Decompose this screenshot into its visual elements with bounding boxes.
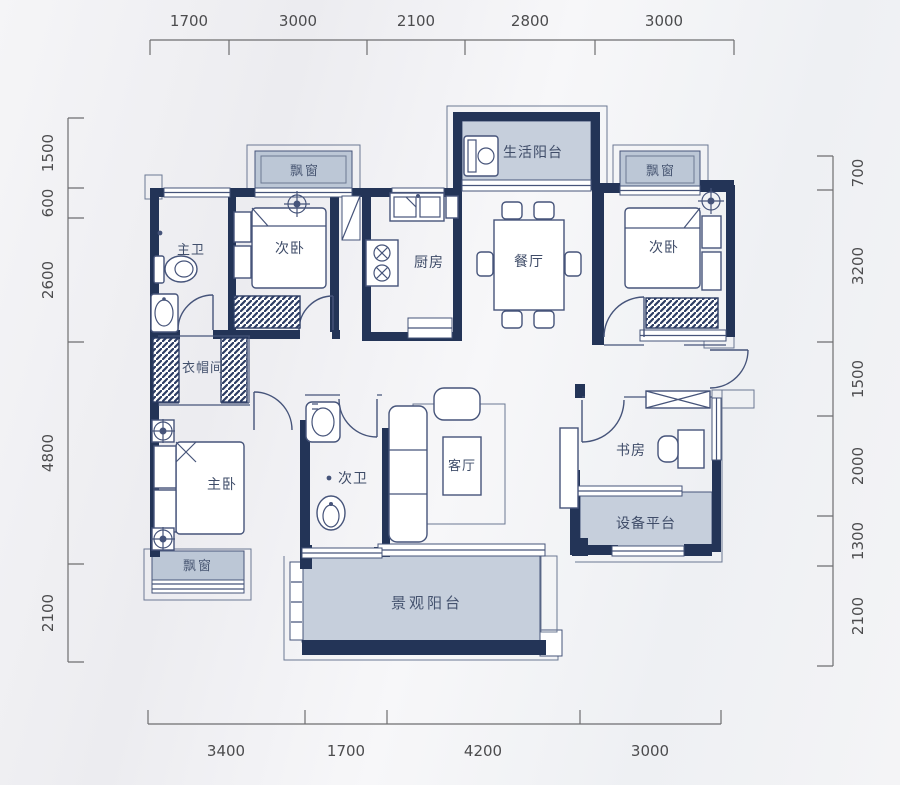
room-label-master-bath: 主卫	[177, 243, 205, 258]
window	[620, 186, 700, 195]
dim-label: 2800	[511, 12, 549, 30]
room-label-bay-top-right: 飘窗	[646, 163, 676, 179]
dim-label: 2600	[39, 261, 57, 299]
toilet-icon	[154, 256, 197, 283]
chair	[477, 252, 493, 276]
chair	[565, 252, 581, 276]
nightstand	[702, 252, 721, 290]
room-living	[389, 388, 578, 542]
window	[712, 398, 721, 460]
window	[612, 546, 684, 556]
window	[302, 548, 382, 558]
closet-icon	[153, 338, 179, 402]
closet-x-box	[646, 391, 710, 408]
room-label-kitchen: 厨房	[414, 255, 444, 271]
room-label-second-bath: 次卫	[338, 471, 368, 487]
chair	[534, 202, 554, 219]
floor-plan-svg: 1700 3000 2100 2800 3000 3400 1700 4200 …	[0, 0, 900, 785]
chair	[658, 436, 678, 462]
desk-icon	[678, 430, 704, 468]
dim-label: 700	[849, 159, 867, 188]
cabinet	[446, 196, 458, 218]
dimension-right: 700 3200 1500 2000 1300 2100	[817, 156, 867, 666]
dim-label: 3400	[207, 742, 245, 760]
dim-label: 1700	[327, 742, 365, 760]
dim-label: 1300	[849, 522, 867, 560]
closet-icon	[221, 338, 247, 402]
door-arc	[582, 400, 624, 442]
floor-plan-canvas: 1700 3000 2100 2800 3000 3400 1700 4200 …	[0, 0, 900, 785]
dim-label: 2100	[849, 597, 867, 635]
room-second-bath	[306, 402, 345, 530]
dim-label: 3000	[279, 12, 317, 30]
dim-label: 3200	[849, 247, 867, 285]
room-kitchen	[366, 193, 458, 286]
wardrobe-icon	[646, 298, 718, 328]
dim-label: 1500	[39, 134, 57, 172]
room-label-cloakroom: 衣帽间	[182, 360, 224, 376]
dim-label: 3000	[631, 742, 669, 760]
door-arc	[254, 392, 292, 430]
dim-label: 4800	[39, 434, 57, 472]
dim-label: 1500	[849, 360, 867, 398]
chair	[502, 311, 522, 328]
sink-icon	[306, 402, 340, 442]
dimension-top: 1700 3000 2100 2800 3000	[150, 12, 734, 55]
door-arc	[339, 399, 377, 437]
tv-console-icon	[560, 428, 578, 508]
light-dot	[158, 231, 163, 236]
room-label-view-balcony: 景观阳台	[391, 594, 463, 612]
room-label-bedroom-top-left: 次卧	[275, 241, 305, 257]
room-bedroom-top-right	[625, 188, 724, 328]
room-label-study: 书房	[616, 443, 646, 459]
room-label-life-balcony: 生活阳台	[503, 145, 563, 161]
window	[255, 188, 352, 197]
room-label-master-bedroom: 主卧	[207, 477, 237, 493]
dim-label: 2100	[39, 594, 57, 632]
stove-icon	[366, 240, 398, 286]
room-label-bay-bottom-left: 飘窗	[183, 558, 213, 574]
nightstand	[702, 216, 721, 248]
washing-machine-icon	[464, 136, 498, 176]
entry-door-arc	[710, 350, 748, 388]
door-arc	[299, 296, 333, 330]
room-study	[646, 391, 710, 468]
sink-icon	[151, 294, 178, 332]
wardrobe-icon	[234, 296, 300, 328]
window	[378, 544, 545, 556]
dimension-bottom: 3400 1700 4200 3000	[148, 710, 721, 760]
room-label-dining: 餐厅	[514, 254, 544, 270]
room-label-bedroom-top-right: 次卧	[649, 240, 679, 256]
nightstand	[234, 212, 251, 242]
kitchen-sink-icon	[390, 193, 444, 221]
light-dot	[327, 476, 332, 481]
sliding-door	[408, 318, 452, 338]
dim-label: 4200	[464, 742, 502, 760]
chair	[502, 202, 522, 219]
chair	[534, 311, 554, 328]
door-arc	[178, 295, 213, 330]
door-arc	[604, 297, 644, 337]
life-balcony-furniture	[464, 136, 498, 176]
window	[152, 580, 244, 593]
dim-label: 2000	[849, 447, 867, 485]
dimension-left: 1500 600 2600 4800 2100	[39, 118, 84, 662]
window	[164, 188, 230, 197]
room-label-bay-top-left: 飘窗	[290, 163, 320, 179]
room-label-living: 客厅	[448, 458, 476, 474]
dim-label: 2100	[397, 12, 435, 30]
vent-shaft	[342, 196, 360, 240]
dim-label: 3000	[645, 12, 683, 30]
window	[578, 486, 682, 496]
room-label-equipment: 设备平台	[616, 515, 676, 532]
wardrobe-shelf	[640, 330, 726, 341]
nightstand	[234, 246, 251, 278]
window	[462, 180, 591, 191]
dim-label: 600	[39, 189, 57, 218]
room-bedroom-top-left	[234, 191, 326, 328]
dim-label: 1700	[170, 12, 208, 30]
toilet-icon	[317, 496, 345, 530]
